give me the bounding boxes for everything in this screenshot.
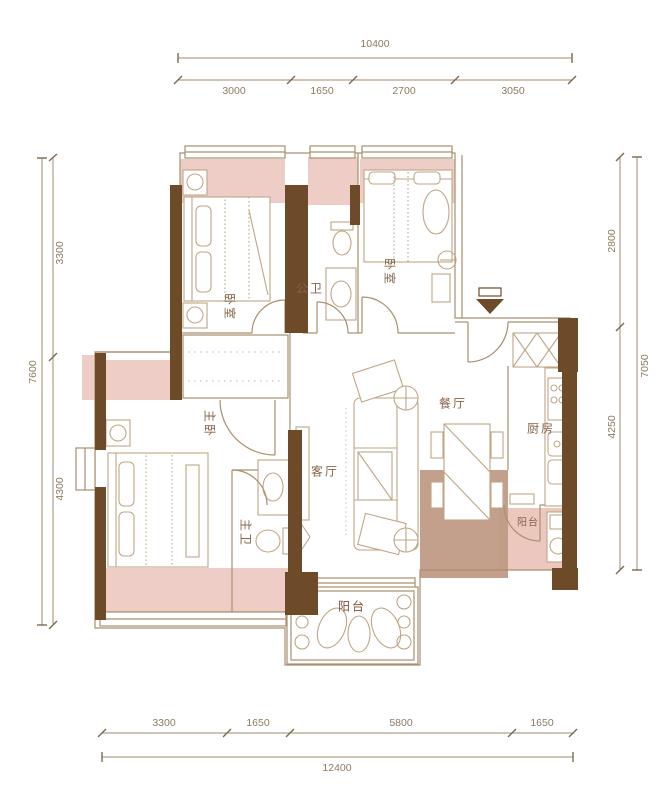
room-label-master-bedroom: 主卧 bbox=[202, 410, 219, 438]
master-bath-fixtures bbox=[256, 460, 291, 554]
dim-top-seg-4: 3050 bbox=[501, 85, 524, 97]
dim-left-seg-2: 4300 bbox=[54, 477, 66, 500]
dim-right-seg-2: 4250 bbox=[606, 415, 618, 438]
dim-right-total: 7050 bbox=[639, 354, 651, 377]
dim-top-seg-1: 3000 bbox=[222, 85, 245, 97]
room-label-dining-room: 餐厅 bbox=[439, 395, 467, 412]
dim-bottom-seg-3: 5800 bbox=[389, 717, 412, 729]
floor-plan-drawing bbox=[0, 0, 670, 791]
room-label-balcony-side: 阳台 bbox=[517, 514, 539, 529]
dim-bottom-seg-4: 1650 bbox=[530, 717, 553, 729]
room-label-bedroom-top-left: 卧室 bbox=[222, 293, 239, 321]
room-label-bedroom-top-right: 卧室 bbox=[382, 258, 399, 286]
dim-top-total: 10400 bbox=[360, 38, 389, 50]
dim-top-seg-3: 2700 bbox=[392, 85, 415, 97]
bedroom-top-right-furniture bbox=[364, 170, 456, 302]
living-room-furniture bbox=[294, 360, 418, 555]
dim-bottom-seg-1: 3300 bbox=[152, 717, 175, 729]
room-label-living-room: 客厅 bbox=[311, 463, 339, 480]
entrance-arrow-icon bbox=[476, 288, 504, 314]
dim-bottom-total: 12400 bbox=[322, 762, 351, 774]
room-label-master-bath: 主卫 bbox=[238, 519, 255, 547]
dim-left-seg-1: 3300 bbox=[54, 241, 66, 264]
master-bedroom-furniture bbox=[106, 420, 208, 567]
room-label-public-bath: 公卫 bbox=[296, 280, 324, 297]
dim-top-seg-2: 1650 bbox=[310, 85, 333, 97]
dim-left-total: 7600 bbox=[27, 360, 39, 383]
floor-plan-page: 卧室 公卫 卧室 主卧 主卫 客厅 餐厅 厨房 阳台 阳台 10400 3000… bbox=[0, 0, 670, 791]
room-label-kitchen: 厨房 bbox=[527, 420, 555, 437]
dim-bottom-seg-2: 1650 bbox=[246, 717, 269, 729]
dim-right-seg-1: 2800 bbox=[606, 229, 618, 252]
closet-hangers bbox=[183, 335, 288, 398]
room-label-balcony-bottom: 阳台 bbox=[338, 598, 366, 615]
